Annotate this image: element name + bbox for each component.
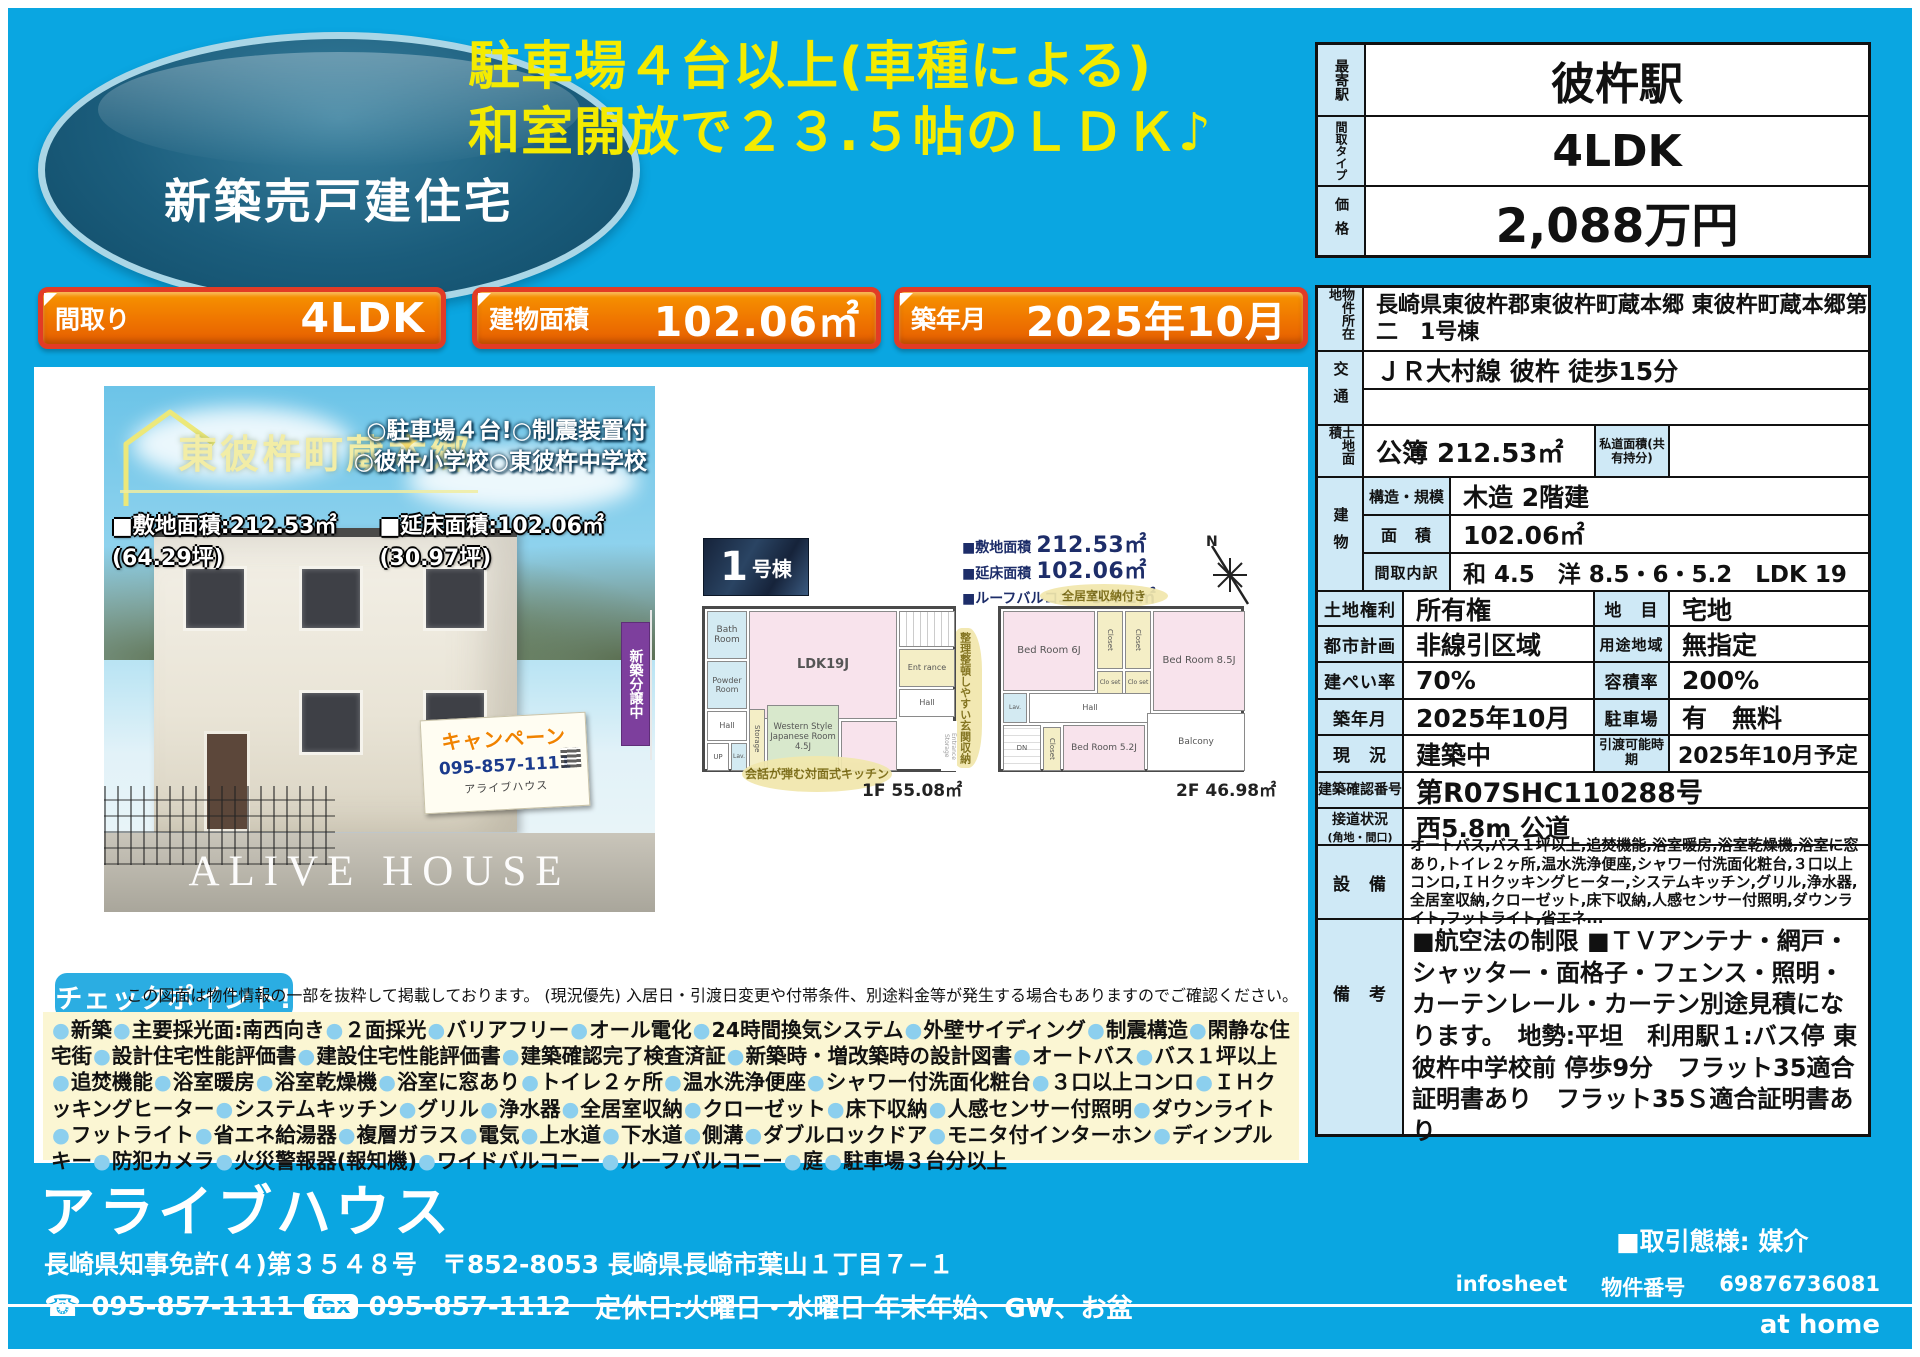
room-up-stairs: UP xyxy=(707,743,729,771)
room-hall-2f: Hall xyxy=(1029,693,1151,723)
yoseki-value: 200% xyxy=(1668,663,1868,698)
yoto-label: 用途地域 xyxy=(1593,627,1668,661)
room-powder-room: Powder Room xyxy=(707,661,747,709)
fp-note-storage: 全居室収納付き xyxy=(1040,584,1168,608)
layout-detail-value: 和 4.5 洋 8.5・6・5.2 LDK 19 xyxy=(1449,554,1868,590)
chikunengetsu-value: 2025年10月 xyxy=(1402,700,1593,734)
summary-table: 最寄駅 彼杵駅 間取タイプ 4LDK 価格 2,088万円 xyxy=(1315,42,1871,258)
floorplan-2f: Bed Room 6J Closet Closet Bed Room 8.5J … xyxy=(998,606,1244,772)
transport-value: ＪＲ大村線 彼杵 徒歩15分 xyxy=(1364,352,1678,388)
road-label: 接道状況 (角地・間口) xyxy=(1318,809,1402,844)
floor-1f-label: 1F 55.08㎡ xyxy=(862,776,962,801)
kenpei-label: 建ぺい率 xyxy=(1318,663,1402,698)
property-type-label: 新築売戸建住宅 xyxy=(164,163,514,232)
headline-line2: 和室開放で２３.５帖のＬＤＫ♪ xyxy=(468,100,1212,166)
row-status: 現 況 建築中 引渡可能時期 2025年10月予定 xyxy=(1318,734,1868,771)
parking-label: 駐車場 xyxy=(1593,700,1668,734)
building-area-value: 102.06㎡ xyxy=(1449,516,1868,552)
structure-value: 木造 2階建 xyxy=(1449,478,1868,514)
room-closet-2: Closet xyxy=(1125,611,1151,669)
row-city-plan: 都市計画 非線引区域 用途地域 無指定 xyxy=(1318,625,1868,661)
qr-code xyxy=(560,747,581,768)
floorplan-1f: Bath Room Powder Room LDK19J Storage Wes… xyxy=(702,606,956,772)
remarks-label: 備 考 xyxy=(1318,920,1402,1134)
fp-site-area-label: ■敷地面積 xyxy=(962,540,1031,556)
property-flyer: 新築売戸建住宅 駐車場４台以上(車種による) 和室開放で２３.５帖のＬＤＫ♪ 最… xyxy=(0,0,1920,1357)
structure-label: 構造・規模 xyxy=(1364,478,1449,514)
photo-site-area: ■敷地面積:212.53㎡(64.29坪) xyxy=(112,508,380,572)
room-bedroom-52j: Bed Room 5.2J xyxy=(1063,725,1145,771)
badge-madori: 間取り 4LDK xyxy=(38,287,446,349)
exterior-photo: 東彼杵町蔵本郷 ✦ ○駐車場４台!○制震装置付 ○彼杵小学校○東彼杵中学校 ■敷… xyxy=(104,386,655,912)
chimoku-value: 宅地 xyxy=(1668,592,1868,625)
photo-area-figures: ■敷地面積:212.53㎡(64.29坪) ■延床面積:102.06㎡(30.9… xyxy=(112,508,647,572)
room-storage: Storage xyxy=(749,709,765,769)
badge-built-date: 築年月 2025年10月 xyxy=(894,287,1308,349)
badge-madori-label: 間取り xyxy=(55,300,130,336)
badge-building-area-label: 建物面積 xyxy=(489,300,589,336)
confirmation-value: 第R07SHC110288号 xyxy=(1402,773,1868,807)
room-lav-2f: Lav. xyxy=(1003,693,1027,723)
station-value: 彼杵駅 xyxy=(1366,45,1868,115)
room-entrance: Ent rance xyxy=(899,649,955,687)
transport-label: 交通 xyxy=(1318,352,1362,424)
badge-built-date-value: 2025年10月 xyxy=(1026,288,1287,348)
price-label: 価格 xyxy=(1318,187,1366,255)
unit-number-suffix: 号棟 xyxy=(752,553,792,582)
property-number-label: 物件番号 xyxy=(1601,1272,1685,1302)
athome-logo: at home xyxy=(1760,1310,1880,1340)
city-plan-label: 都市計画 xyxy=(1318,627,1402,661)
price-value: 2,088万円 xyxy=(1366,187,1868,255)
room-hall2-1f: Hall xyxy=(899,689,955,717)
house-window xyxy=(423,566,487,631)
layout-type-label: 間取タイプ xyxy=(1318,117,1366,185)
unit-number-badge: 1 号棟 xyxy=(703,538,809,596)
room-dn-stairs: DN xyxy=(1003,725,1041,771)
room-bathroom: Bath Room xyxy=(707,611,747,659)
transport-value2 xyxy=(1364,390,1376,424)
room-entrance-storage: Entrance Storage xyxy=(941,721,957,771)
room-closet-3: Clo set xyxy=(1097,671,1123,695)
house-window xyxy=(299,566,363,631)
row-building: 建物 構造・規模 木造 2階建 面 積 102.06㎡ 間取内訳 和 4.5 洋… xyxy=(1318,476,1868,590)
land-rights-label: 土地権利 xyxy=(1318,592,1402,625)
confirmation-label: 建築確認番号 xyxy=(1318,773,1402,807)
land-area-label: 土地面積 xyxy=(1318,426,1362,476)
summary-row-price: 価格 2,088万円 xyxy=(1318,185,1868,255)
property-info-table: 物件所在地 長崎県東彼杵郡東彼杵町蔵本郷 東彼杵町蔵本郷第二 1号棟 交通 ＪＲ… xyxy=(1315,285,1871,1137)
disclaimer-text: この図面は物件情報の一部を抜粋して掲載しております。 (現況優先) 入居日・引渡… xyxy=(126,982,1298,1006)
room-bedroom-85j: Bed Room 8.5J xyxy=(1153,611,1245,711)
row-equipment: 設 備 オートバス,バス１坪以上,追焚機能,浴室暖房,浴室乾燥機,浴室に窓あり,… xyxy=(1318,844,1868,918)
yoto-value: 無指定 xyxy=(1668,627,1868,661)
handover-label: 引渡可能時期 xyxy=(1593,736,1668,771)
row-land-area: 土地面積 公簿 212.53㎡ 私道面積(共有持分) xyxy=(1318,424,1868,476)
footer-divider xyxy=(8,1304,1912,1307)
room-ldk: LDK19J xyxy=(749,611,897,719)
house-window xyxy=(183,566,247,631)
summary-row-station: 最寄駅 彼杵駅 xyxy=(1318,45,1868,115)
station-label: 最寄駅 xyxy=(1318,45,1366,115)
photo-floor-area: ■延床面積:102.06㎡(30.97坪) xyxy=(380,508,648,572)
sales-flag: 新築分譲中 xyxy=(621,622,650,746)
chikunengetsu-label: 築年月 xyxy=(1318,700,1402,734)
private-road-value xyxy=(1668,426,1868,476)
transaction-type: ■取引態様: 媒介 xyxy=(1616,1222,1808,1258)
row-transport: 交通 ＪＲ大村線 彼杵 徒歩15分 xyxy=(1318,350,1868,424)
status-label: 現 況 xyxy=(1318,736,1402,771)
photo-point-line1: ○駐車場４台!○制震装置付 xyxy=(354,416,647,447)
room-hall-1f: Hall xyxy=(707,711,747,741)
summary-row-layout: 間取タイプ 4LDK xyxy=(1318,115,1868,185)
location-label: 物件所在地 xyxy=(1318,288,1362,350)
infosheet-label: infosheet xyxy=(1456,1272,1568,1302)
house-window xyxy=(299,690,363,755)
room-closet-1: Closet xyxy=(1097,611,1123,669)
fp-floor-area-label: ■延床面積 xyxy=(962,566,1031,582)
room-bedroom-6j: Bed Room 6J xyxy=(1003,611,1095,691)
compass-icon: N xyxy=(1188,530,1272,614)
room-closet-5: Closet xyxy=(1043,727,1061,771)
row-confirmation: 建築確認番号 第R07SHC110288号 xyxy=(1318,771,1868,807)
room-balcony: Balcony xyxy=(1147,713,1245,771)
headline: 駐車場４台以上(車種による) 和室開放で２３.５帖のＬＤＫ♪ xyxy=(468,34,1212,166)
row-land-rights: 土地権利 所有権 地 目 宅地 xyxy=(1318,590,1868,625)
row-coverage: 建ぺい率 70% 容積率 200% xyxy=(1318,661,1868,698)
checkpoint-features: ●新築●主要採光面:南西向き●２面採光●バリアフリー●オール電化●24時間換気シ… xyxy=(43,1012,1299,1160)
road-label-main: 接道状況 xyxy=(1332,809,1388,829)
remarks-value: ■航空法の制限 ■ＴＶアンテナ・網戸・シャッター・面格子・フェンス・照明・カーテ… xyxy=(1402,920,1868,1134)
badge-building-area-value: 102.06㎡ xyxy=(654,288,860,348)
room-closet-4: Clo set xyxy=(1125,671,1151,695)
land-area-value: 公簿 212.53㎡ xyxy=(1362,426,1594,476)
status-value: 建築中 xyxy=(1402,736,1593,771)
kenpei-value: 70% xyxy=(1402,663,1593,698)
equipment-value: オートバス,バス１坪以上,追焚機能,浴室暖房,浴室乾燥機,浴室に窓あり,トイレ２… xyxy=(1402,846,1868,918)
room-porch xyxy=(899,611,955,647)
headline-line1: 駐車場４台以上(車種による) xyxy=(468,34,1212,100)
badge-madori-value: 4LDK xyxy=(301,294,425,342)
row-remarks: 備 考 ■航空法の制限 ■ＴＶアンテナ・網戸・シャッター・面格子・フェンス・照明… xyxy=(1318,918,1868,1134)
unit-number: 1 xyxy=(720,547,748,587)
row-location: 物件所在地 長崎県東彼杵郡東彼杵町蔵本郷 東彼杵町蔵本郷第二 1号棟 xyxy=(1318,288,1868,350)
badge-built-date-label: 築年月 xyxy=(911,300,986,336)
fp-floor-area-value: 102.06㎡ xyxy=(1036,559,1146,584)
yoseki-label: 容積率 xyxy=(1593,663,1668,698)
location-value: 長崎県東彼杵郡東彼杵町蔵本郷 東彼杵町蔵本郷第二 1号棟 xyxy=(1362,288,1868,350)
handover-value: 2025年10月予定 xyxy=(1668,736,1868,771)
infosheet-line: infosheet 物件番号 69876736081 xyxy=(1456,1272,1880,1302)
layout-type-value: 4LDK xyxy=(1366,117,1868,185)
photo-selling-points: ○駐車場４台!○制震装置付 ○彼杵小学校○東彼杵中学校 xyxy=(354,416,647,478)
badge-building-area: 建物面積 102.06㎡ xyxy=(472,287,881,349)
private-road-label: 私道面積(共有持分) xyxy=(1594,426,1668,476)
flag-pole xyxy=(650,610,652,760)
floor-2f-label: 2F 46.98㎡ xyxy=(1176,776,1276,801)
land-rights-value: 所有権 xyxy=(1402,592,1593,625)
photo-point-line2: ○彼杵小学校○東彼杵中学校 xyxy=(354,447,647,478)
equipment-label: 設 備 xyxy=(1318,846,1402,918)
row-built-date: 築年月 2025年10月 駐車場 有 無料 xyxy=(1318,698,1868,734)
company-name: アライブハウス xyxy=(40,1167,453,1247)
license-address: 長崎県知事免許(４)第３５４８号 〒852-8053 長崎県長崎市葉山１丁目７−… xyxy=(44,1245,954,1281)
layout-detail-label: 間取内訳 xyxy=(1364,554,1449,590)
building-label: 建物 xyxy=(1318,478,1362,590)
building-area-label: 面 積 xyxy=(1364,516,1449,552)
fp-site-area-value: 212.53㎡ xyxy=(1036,533,1146,558)
parking-value: 有 無料 xyxy=(1668,700,1868,734)
campaign-sign: キャンペーン 095-857-1111 アライブハウス xyxy=(420,712,591,815)
chimoku-label: 地 目 xyxy=(1593,592,1668,625)
property-number-value: 69876736081 xyxy=(1719,1272,1880,1302)
alive-house-watermark: ALIVE HOUSE xyxy=(104,847,655,896)
city-plan-value: 非線引区域 xyxy=(1402,627,1593,661)
road-label-sub: (角地・間口) xyxy=(1327,829,1392,845)
